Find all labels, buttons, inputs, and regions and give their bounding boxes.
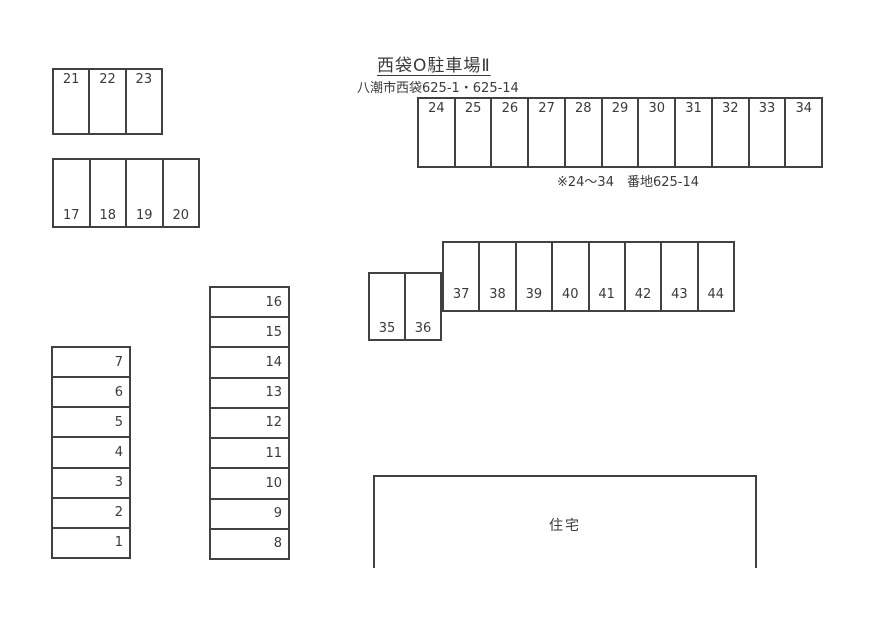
address-text: 八潮市西袋625-1・625-14 bbox=[357, 77, 519, 96]
parking-spot-23: 23 bbox=[125, 70, 161, 133]
parking-block-21-23: 21 22 23 bbox=[52, 68, 163, 135]
parking-spot-20: 20 bbox=[162, 160, 199, 226]
parking-spot-30: 30 bbox=[637, 99, 674, 166]
parking-spot-26: 26 bbox=[490, 99, 527, 166]
parking-spot-11: 11 bbox=[211, 437, 288, 467]
parking-spot-40: 40 bbox=[551, 243, 587, 310]
page-title: 西袋O駐車場Ⅱ bbox=[377, 51, 491, 76]
parking-spot-2: 2 bbox=[53, 497, 129, 527]
parking-block-17-20: 17 18 19 20 bbox=[52, 158, 200, 228]
parking-spot-17: 17 bbox=[54, 160, 89, 226]
parking-spot-38: 38 bbox=[478, 243, 514, 310]
parking-spot-44: 44 bbox=[697, 243, 733, 310]
parking-map-page: 西袋O駐車場Ⅱ 八潮市西袋625-1・625-14 21 22 23 17 18… bbox=[0, 0, 891, 624]
parking-spot-7: 7 bbox=[53, 348, 129, 376]
parking-spot-6: 6 bbox=[53, 376, 129, 406]
parking-spot-4: 4 bbox=[53, 436, 129, 466]
residence-label: 住宅 bbox=[549, 515, 581, 535]
parking-spot-21: 21 bbox=[54, 70, 88, 133]
parking-spot-19: 19 bbox=[125, 160, 162, 226]
parking-spot-28: 28 bbox=[564, 99, 601, 166]
parking-spot-18: 18 bbox=[89, 160, 126, 226]
parking-row-24-34: 24 25 26 27 28 29 30 31 32 33 34 bbox=[417, 97, 823, 168]
parking-spot-35: 35 bbox=[370, 274, 404, 339]
parking-spot-15: 15 bbox=[211, 316, 288, 346]
parking-spot-37: 37 bbox=[444, 243, 478, 310]
parking-spot-27: 27 bbox=[527, 99, 564, 166]
parking-spot-13: 13 bbox=[211, 377, 288, 407]
parking-spot-22: 22 bbox=[88, 70, 124, 133]
parking-stack-1-7: 7 6 5 4 3 2 1 bbox=[51, 346, 131, 559]
parking-spot-43: 43 bbox=[660, 243, 696, 310]
parking-spot-25: 25 bbox=[454, 99, 491, 166]
parking-spot-31: 31 bbox=[674, 99, 711, 166]
parking-row-37-44: 37 38 39 40 41 42 43 44 bbox=[442, 241, 735, 312]
parking-spot-10: 10 bbox=[211, 467, 288, 497]
parking-spot-8: 8 bbox=[211, 528, 288, 558]
parking-spot-34: 34 bbox=[784, 99, 821, 166]
parking-spot-29: 29 bbox=[601, 99, 638, 166]
parking-spot-41: 41 bbox=[588, 243, 624, 310]
parking-spot-32: 32 bbox=[711, 99, 748, 166]
parking-spot-36: 36 bbox=[404, 274, 440, 339]
parking-spot-12: 12 bbox=[211, 407, 288, 437]
parking-spot-42: 42 bbox=[624, 243, 660, 310]
parking-spot-16: 16 bbox=[211, 288, 288, 316]
parking-spot-3: 3 bbox=[53, 467, 129, 497]
parking-block-35-36: 35 36 bbox=[368, 272, 442, 341]
parking-spot-9: 9 bbox=[211, 498, 288, 528]
parking-spot-24: 24 bbox=[419, 99, 454, 166]
parking-spot-33: 33 bbox=[748, 99, 785, 166]
parking-spot-1: 1 bbox=[53, 527, 129, 557]
parking-spot-14: 14 bbox=[211, 346, 288, 376]
parking-spot-5: 5 bbox=[53, 406, 129, 436]
parking-stack-8-16: 16 15 14 13 12 11 10 9 8 bbox=[209, 286, 290, 560]
note-text: ※24～34 番地625-14 bbox=[557, 171, 699, 190]
residence-outline: 住宅 bbox=[373, 475, 757, 568]
parking-spot-39: 39 bbox=[515, 243, 551, 310]
